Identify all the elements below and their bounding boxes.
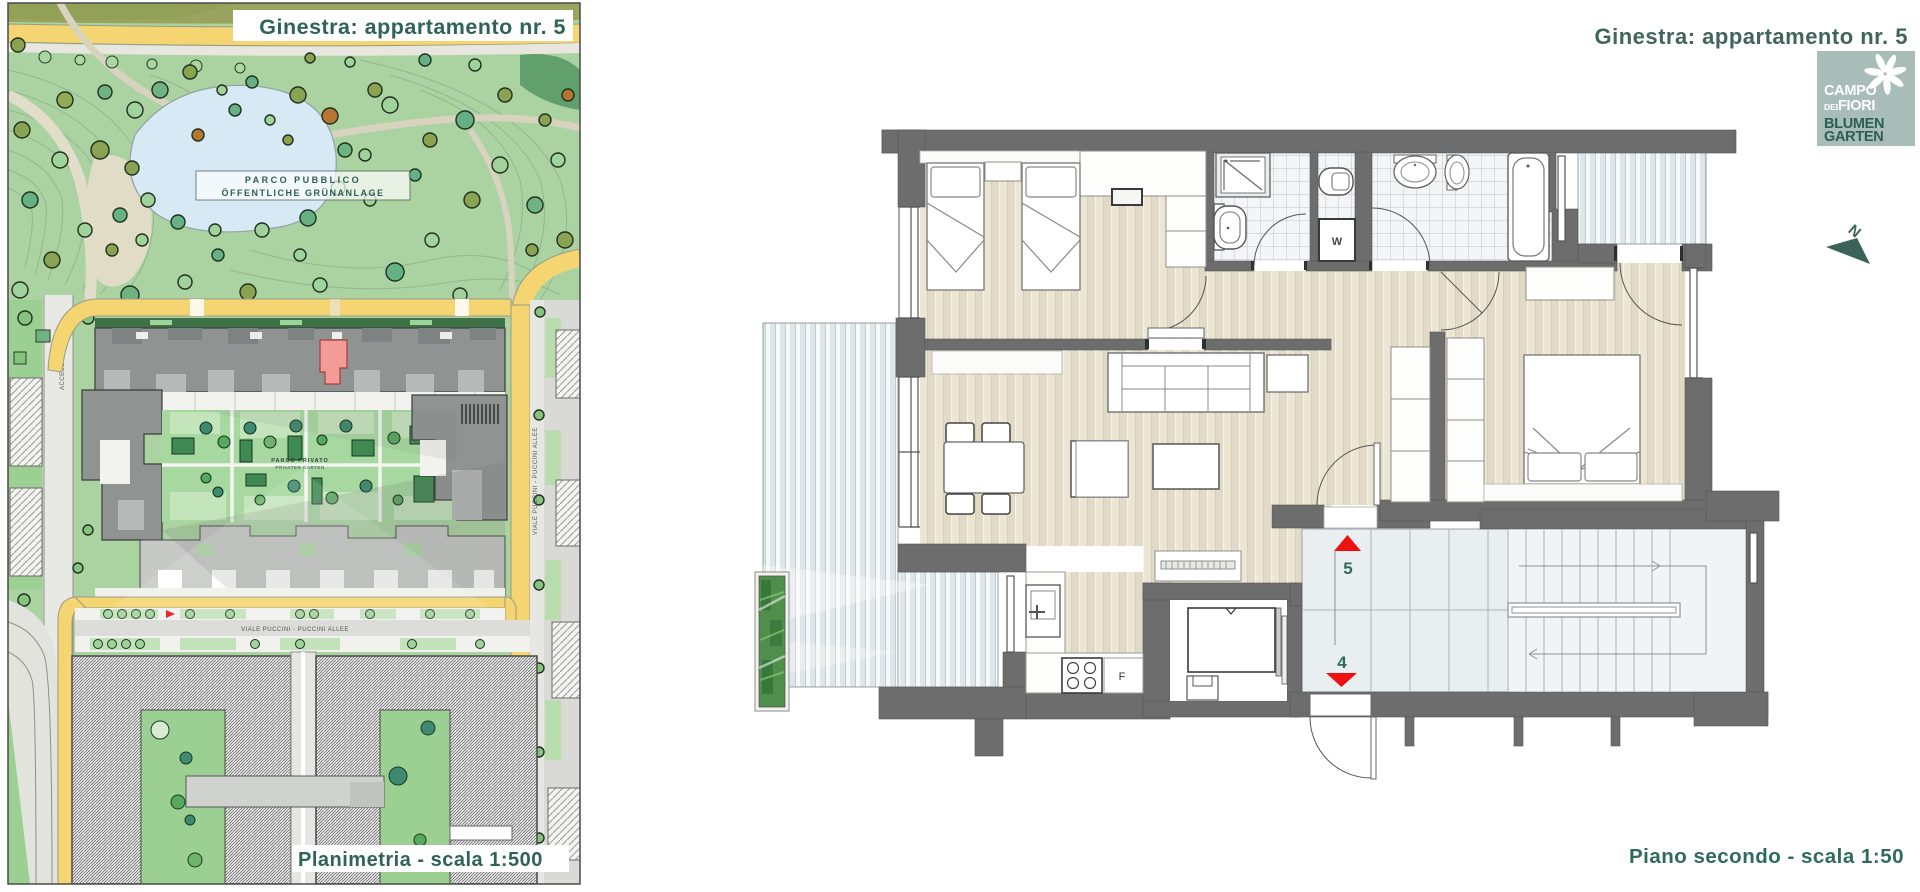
svg-text:VIALE PUCCINI - PUCCINI ALLEE: VIALE PUCCINI - PUCCINI ALLEE xyxy=(533,427,539,535)
svg-text:PARCO PUBBLICO: PARCO PUBBLICO xyxy=(245,175,361,185)
svg-text:Planimetria - scala 1:500: Planimetria - scala 1:500 xyxy=(298,849,543,871)
svg-text:PARCO PRIVATO: PARCO PRIVATO xyxy=(271,458,329,464)
svg-text:Piano secondo - scala 1:50: Piano secondo - scala 1:50 xyxy=(1629,845,1904,868)
svg-text:Ginestra: appartamento nr. 5: Ginestra: appartamento nr. 5 xyxy=(259,15,566,39)
svg-text:GARTEN: GARTEN xyxy=(1824,129,1883,145)
svg-text:VIALE PUCCINI - PUCCINI ALLEE: VIALE PUCCINI - PUCCINI ALLEE xyxy=(241,627,349,633)
svg-text:DEI: DEI xyxy=(1824,102,1838,112)
svg-text:FIORI: FIORI xyxy=(1838,98,1875,114)
svg-text:5: 5 xyxy=(1343,559,1352,578)
svg-text:W: W xyxy=(1332,236,1343,248)
svg-text:CAMPO: CAMPO xyxy=(1824,83,1876,99)
svg-text:Ginestra: appartamento nr. 5: Ginestra: appartamento nr. 5 xyxy=(1594,24,1908,49)
svg-text:ÖFFENTLICHE GRÜNANLAGE: ÖFFENTLICHE GRÜNANLAGE xyxy=(222,188,385,198)
svg-text:4: 4 xyxy=(1337,653,1347,672)
svg-text:PRIVATER GARTEN: PRIVATER GARTEN xyxy=(275,465,324,470)
svg-text:F: F xyxy=(1119,671,1126,683)
